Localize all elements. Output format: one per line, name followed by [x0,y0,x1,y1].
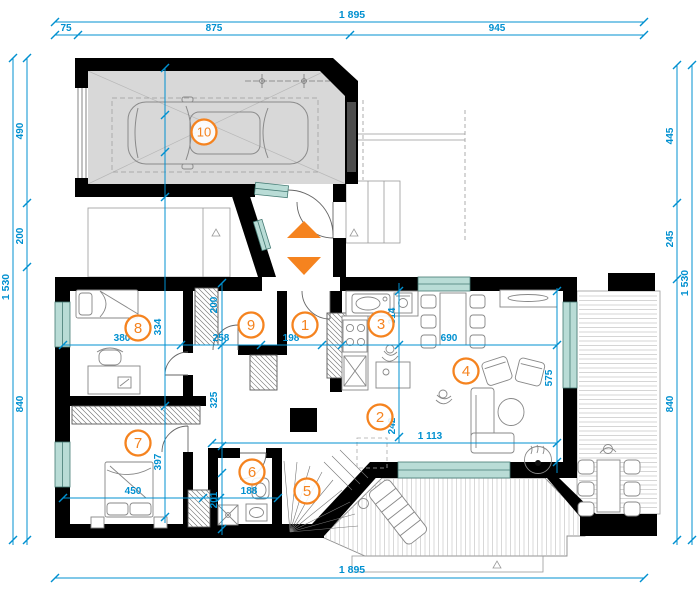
dim-258: 258 [213,333,230,344]
room-number: 4 [462,363,470,380]
dim-397: 397 [153,453,164,470]
dim-1113: 1 113 [418,431,443,442]
room-badge-5: 5 [295,479,320,504]
room-badge-4: 4 [454,359,479,384]
room-number: 3 [377,316,385,333]
dim-bottom-total: 1 895 [339,564,365,576]
dim-right-total: 1 530 [679,270,691,296]
dim-690: 690 [441,333,458,344]
room-number: 10 [197,125,211,140]
sliding-door-terrace [398,462,510,478]
floor-plan-drawing: 1 895 75 875 945 1 530 490 200 840 445 2… [0,0,698,595]
room-number: 2 [376,409,384,426]
garage-side-door [347,102,356,172]
dim-right-245: 245 [665,230,676,247]
room-badge-7: 7 [126,431,151,456]
room-number: 6 [248,464,256,481]
dim-334: 334 [153,318,164,335]
floor-plan-page: 1 895 75 875 945 1 530 490 200 840 445 2… [0,0,698,595]
room-badge-1: 1 [293,313,318,338]
dim-left-200: 200 [15,227,26,244]
kitchen-island [376,362,410,388]
dim-left-840: 840 [15,395,26,412]
window-living-east [563,302,577,388]
room-badge-9: 9 [239,313,264,338]
dim-top-75: 75 [60,23,72,34]
dim-top-945: 945 [489,23,506,34]
dim-right-445: 445 [665,127,676,144]
wardrobe-room7 [72,406,200,424]
window-room7 [55,442,70,487]
room-number: 1 [301,317,309,334]
dim-top-total: 1 895 [339,9,365,21]
room-number: 8 [134,320,142,337]
window-room8 [55,302,70,347]
room-number: 5 [303,483,311,500]
room-badge-2: 2 [368,405,393,430]
room-badge-10: 10 [192,120,217,145]
bed-single [76,290,138,318]
dim-450: 450 [125,486,142,497]
dim-201: 201 [209,491,220,508]
dim-188: 188 [241,486,258,497]
garage-door [75,88,88,178]
dim-right-840: 840 [665,395,676,412]
room-number: 7 [134,435,142,452]
dim-left-490: 490 [15,122,26,139]
dim-200: 200 [209,296,220,313]
room-badge-6: 6 [240,460,265,485]
coffee-table [498,399,524,426]
room-badge-3: 3 [369,312,394,337]
dim-325: 325 [209,391,220,408]
room-number: 9 [247,317,255,334]
room-badge-8: 8 [126,316,151,341]
dim-left-total: 1 530 [0,274,12,300]
desk-chair [99,350,121,365]
closet-corridor [250,355,277,390]
window-dining [418,277,470,291]
dim-575: 575 [544,369,555,386]
dim-top-875: 875 [206,23,223,34]
